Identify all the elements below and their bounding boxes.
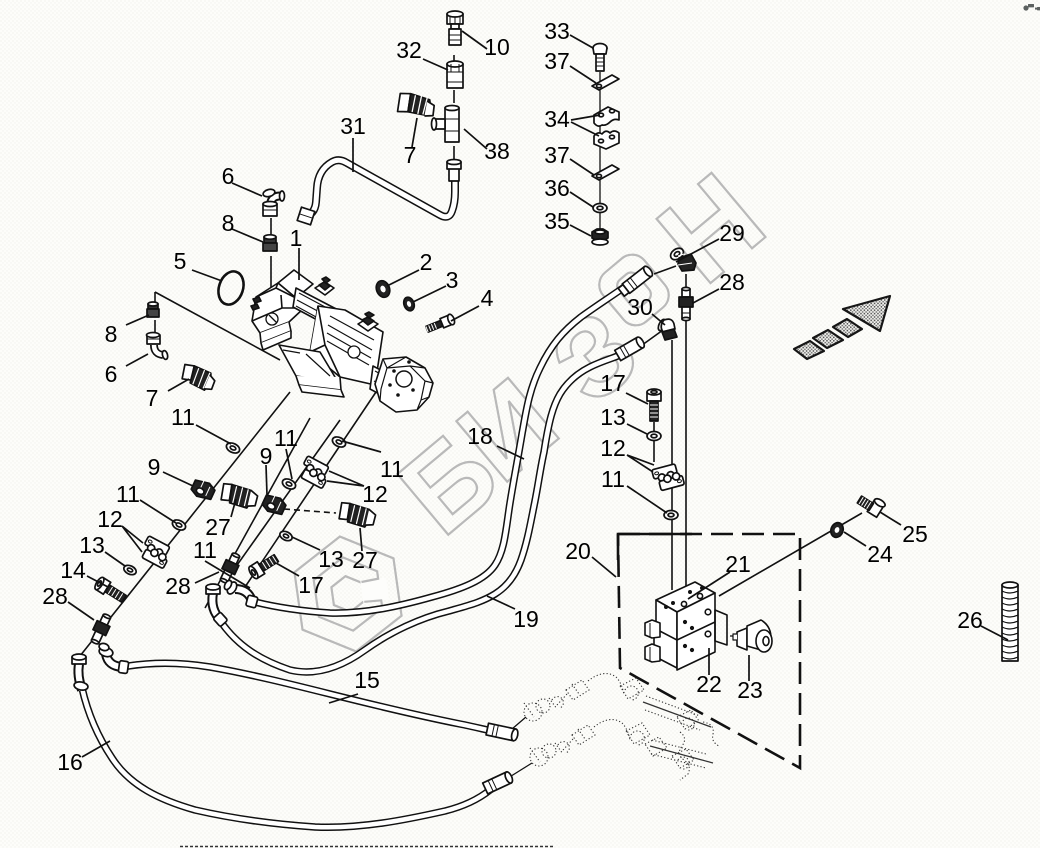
svg-text:9: 9 xyxy=(148,454,161,480)
svg-text:32: 32 xyxy=(396,37,422,63)
svg-text:5: 5 xyxy=(174,248,187,274)
svg-text:10: 10 xyxy=(484,34,510,60)
svg-text:30: 30 xyxy=(627,294,653,320)
svg-text:25: 25 xyxy=(902,521,928,547)
svg-text:12: 12 xyxy=(97,506,123,532)
svg-text:1: 1 xyxy=(290,225,303,251)
svg-text:19: 19 xyxy=(513,606,539,632)
svg-text:34: 34 xyxy=(544,106,570,132)
svg-text:31: 31 xyxy=(340,113,366,139)
svg-text:9: 9 xyxy=(260,443,273,469)
svg-text:13: 13 xyxy=(318,546,344,572)
svg-text:38: 38 xyxy=(484,138,510,164)
svg-text:6: 6 xyxy=(105,361,118,387)
svg-text:29: 29 xyxy=(719,220,745,246)
svg-text:2: 2 xyxy=(420,249,433,275)
svg-text:12: 12 xyxy=(362,481,388,507)
svg-text:6: 6 xyxy=(222,163,235,189)
svg-text:16: 16 xyxy=(57,749,83,775)
svg-text:28: 28 xyxy=(719,269,745,295)
svg-text:22: 22 xyxy=(696,671,722,697)
svg-text:28: 28 xyxy=(165,573,191,599)
svg-text:7: 7 xyxy=(146,385,159,411)
svg-text:37: 37 xyxy=(544,48,570,74)
svg-text:15: 15 xyxy=(354,667,380,693)
svg-text:24: 24 xyxy=(867,541,893,567)
svg-text:11: 11 xyxy=(171,404,195,430)
svg-text:11: 11 xyxy=(380,456,404,482)
svg-text:13: 13 xyxy=(600,404,626,430)
svg-text:8: 8 xyxy=(222,210,235,236)
svg-text:35: 35 xyxy=(544,208,570,234)
svg-text:4: 4 xyxy=(481,285,494,311)
svg-text:3: 3 xyxy=(446,267,459,293)
svg-text:13: 13 xyxy=(79,532,105,558)
svg-text:21: 21 xyxy=(725,551,751,577)
svg-text:11: 11 xyxy=(116,481,140,507)
svg-text:17: 17 xyxy=(298,572,324,598)
svg-text:18: 18 xyxy=(467,423,493,449)
svg-text:27: 27 xyxy=(352,547,378,573)
svg-text:11: 11 xyxy=(274,425,298,451)
svg-text:7: 7 xyxy=(404,142,417,168)
svg-text:33: 33 xyxy=(544,18,570,44)
svg-text:17: 17 xyxy=(600,370,626,396)
svg-text:20: 20 xyxy=(565,538,591,564)
svg-text:14: 14 xyxy=(60,557,86,583)
svg-text:26: 26 xyxy=(957,607,983,633)
svg-text:11: 11 xyxy=(193,537,217,563)
svg-text:36: 36 xyxy=(544,175,570,201)
svg-text:23: 23 xyxy=(737,677,763,703)
svg-text:12: 12 xyxy=(600,435,626,461)
svg-text:28: 28 xyxy=(42,583,68,609)
svg-text:8: 8 xyxy=(105,321,118,347)
svg-text:37: 37 xyxy=(544,142,570,168)
svg-text:11: 11 xyxy=(601,466,625,492)
